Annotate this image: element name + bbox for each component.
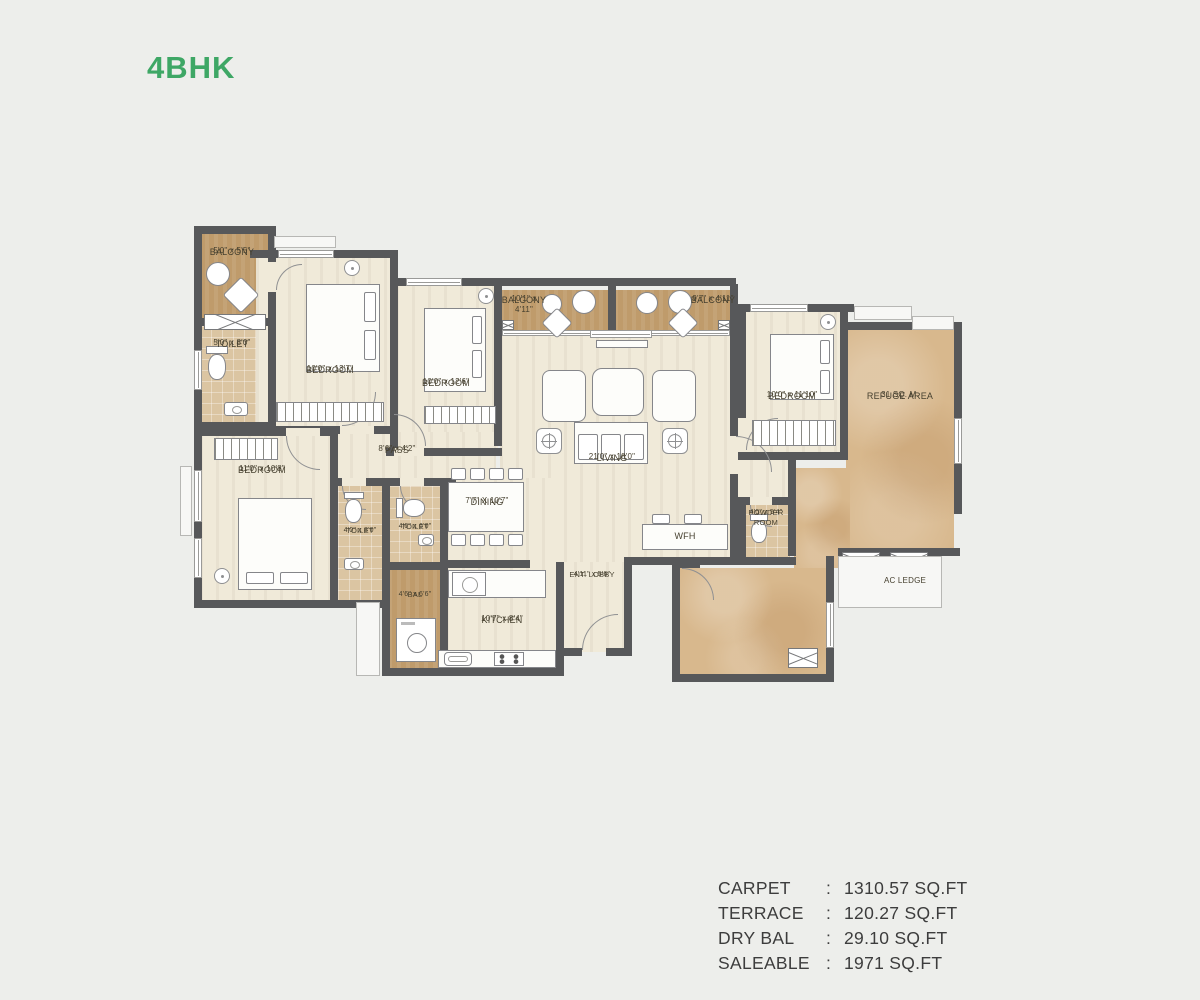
toilet-tank-icon <box>396 498 403 518</box>
spec-row-dry-bal: DRY BAL : 29.10 SQ.FT <box>718 926 968 951</box>
window <box>750 304 808 312</box>
pillow-icon <box>820 340 830 364</box>
pillow-icon <box>246 572 274 584</box>
wall-segment <box>382 668 564 676</box>
spec-row-terrace: TERRACE : 120.27 SQ.FT <box>718 901 968 926</box>
spec-label: DRY BAL <box>718 928 826 949</box>
spec-label: CARPET <box>718 878 826 899</box>
toilet-wc-icon <box>403 499 425 517</box>
duct-box-icon <box>718 320 730 330</box>
wall-segment <box>194 226 276 234</box>
spec-separator: : <box>826 903 844 924</box>
fridge-icon <box>452 572 486 596</box>
wall-segment <box>440 478 448 676</box>
wall-segment <box>194 226 202 326</box>
wall-segment <box>608 284 616 336</box>
wardrobe-icon <box>214 438 278 460</box>
window <box>194 538 202 578</box>
page: { "title": "4BHK", "colors": { "accent_g… <box>0 0 1200 1000</box>
pillow-icon <box>472 350 482 378</box>
coffee-table-icon <box>592 368 644 416</box>
wall-segment <box>556 562 564 676</box>
door-opening <box>268 262 276 292</box>
window <box>954 418 962 464</box>
ceiling-fan-icon <box>344 260 360 276</box>
washbasin-icon <box>344 558 364 570</box>
balcony-chair-icon <box>206 262 230 286</box>
toilet-wc-icon <box>345 499 362 523</box>
spec-row-saleable: SALEABLE : 1971 SQ.FT <box>718 951 968 976</box>
ledge <box>912 316 954 330</box>
spec-value: 29.10 SQ.FT <box>844 928 968 949</box>
chair-icon <box>451 534 466 546</box>
duct-box-icon <box>502 320 514 330</box>
wardrobe-icon <box>752 420 836 446</box>
spec-value: 1310.57 SQ.FT <box>844 878 968 899</box>
wall-segment <box>330 426 338 608</box>
balcony-chair-icon <box>636 292 658 314</box>
spec-separator: : <box>826 928 844 949</box>
balcony-chair-icon <box>572 290 596 314</box>
chair-icon <box>508 468 523 480</box>
ledge <box>274 236 336 248</box>
toilet-wc-icon <box>208 354 226 380</box>
tv-unit-icon <box>596 340 648 348</box>
wall-segment <box>840 312 848 460</box>
chair-icon <box>489 468 504 480</box>
pillow-icon <box>280 572 308 584</box>
spec-label: SALEABLE <box>718 953 826 974</box>
wall-segment <box>556 648 582 656</box>
ceiling-fan-icon <box>820 314 836 330</box>
chair-icon <box>508 534 523 546</box>
spec-separator: : <box>826 953 844 974</box>
washbasin-icon <box>418 534 434 546</box>
wardrobe-icon <box>424 406 496 424</box>
window <box>278 250 334 258</box>
toilet-tank-icon <box>344 492 364 499</box>
wall-segment <box>440 560 530 568</box>
pillow-icon <box>472 316 482 344</box>
chair-icon <box>652 514 670 524</box>
spec-value: 120.27 SQ.FT <box>844 903 968 924</box>
door-opening <box>400 478 424 486</box>
wall-segment <box>672 560 680 682</box>
sliding-door <box>590 330 652 338</box>
ac-unit-icon <box>788 648 818 668</box>
washing-machine-icon <box>396 618 436 662</box>
wall-segment <box>846 322 916 330</box>
ceiling-fan-icon <box>214 568 230 584</box>
door-opening <box>340 426 374 434</box>
floor-plan: BALCONY 5'0" x 5'5" TOILET 5'0" x 8'0" B… <box>190 222 990 692</box>
pillow-icon <box>820 370 830 394</box>
ledge <box>854 306 912 320</box>
stove-icon <box>494 652 524 666</box>
armchair-icon <box>652 370 696 422</box>
window <box>826 602 834 648</box>
chair-icon <box>470 534 485 546</box>
washbasin-icon <box>224 402 248 416</box>
spec-label: TERRACE <box>718 903 826 924</box>
ceiling-fan-icon <box>478 288 494 304</box>
planter-box-icon <box>204 314 266 330</box>
armchair-icon <box>542 370 586 422</box>
wall-segment <box>672 674 834 682</box>
wall-segment <box>730 474 738 565</box>
spec-value: 1971 SQ.FT <box>844 953 968 974</box>
door-opening <box>750 497 772 505</box>
area-specs: CARPET : 1310.57 SQ.FT TERRACE : 120.27 … <box>718 876 968 976</box>
sink-icon <box>444 652 472 666</box>
window <box>194 350 202 390</box>
pillow-icon <box>364 292 376 322</box>
spec-row-carpet: CARPET : 1310.57 SQ.FT <box>718 876 968 901</box>
utility-shaft <box>356 602 380 676</box>
side-table-icon <box>536 428 562 454</box>
wall-segment <box>386 562 442 570</box>
wall-segment <box>624 557 632 656</box>
wardrobe-icon <box>276 402 384 422</box>
pillow-icon <box>364 330 376 360</box>
wall-segment <box>624 557 796 565</box>
page-title: 4BHK <box>147 50 235 86</box>
chair-icon <box>451 468 466 480</box>
wall-segment <box>382 570 390 676</box>
chair-icon <box>684 514 702 524</box>
chair-icon <box>489 534 504 546</box>
door-opening <box>342 478 366 486</box>
floor-refuge-area <box>846 330 954 548</box>
ledge <box>180 466 192 536</box>
window <box>194 470 202 522</box>
side-table-icon <box>662 428 688 454</box>
spec-separator: : <box>826 878 844 899</box>
door-opening <box>286 428 320 436</box>
window <box>406 278 462 286</box>
chair-icon <box>470 468 485 480</box>
wall-segment <box>382 478 390 570</box>
